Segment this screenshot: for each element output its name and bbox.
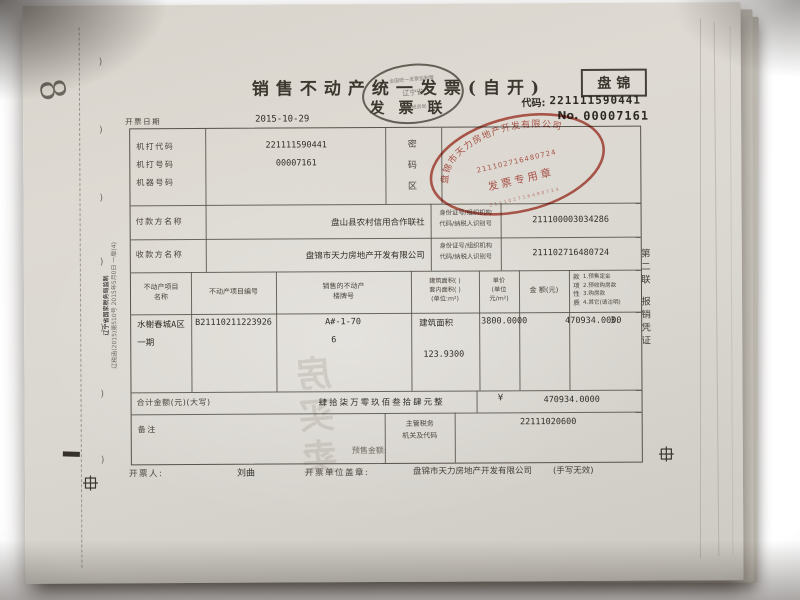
copy-vertical-label: 第二联 报销凭证 bbox=[640, 248, 653, 348]
tax-authority-label-2: 机关及代码 bbox=[387, 431, 453, 441]
currency-symbol: ¥ bbox=[498, 393, 504, 403]
copy-label-line-1: 第二联 bbox=[640, 248, 652, 287]
total-amount: 470934.0000 bbox=[544, 395, 600, 405]
item-building-line2: 6 bbox=[331, 335, 336, 345]
table-grid-line bbox=[385, 128, 386, 204]
nature-option-2: 2.预收购房款 bbox=[583, 281, 621, 290]
invoice-paper-sheet: ) ) ) ) ) ) ) 8 辽宁省国家税务局监制 辽税函(2015)第510… bbox=[22, 2, 743, 584]
table-grid-line bbox=[131, 237, 641, 241]
handwritten-number: 8 bbox=[30, 75, 74, 105]
table-grid-line bbox=[131, 270, 641, 274]
machine-code-label: 机打代码 bbox=[136, 141, 174, 152]
nature-option-4: 4.其它(请注明) bbox=[583, 299, 621, 308]
col-payment-nature: 款项性质 1.预售定金 2.预收购房款 3.购房款 4.其它(请注明) bbox=[572, 273, 621, 308]
item-area-type: 建筑面积 bbox=[419, 317, 453, 329]
issuer-name: 刘曲 bbox=[237, 466, 255, 479]
paper-crease bbox=[700, 18, 701, 558]
tax-authority-code: 22111020600 bbox=[457, 417, 640, 428]
table-grid-line bbox=[205, 129, 207, 272]
registration-cross-mark bbox=[83, 475, 98, 490]
machine-id-label: 机器号码 bbox=[136, 177, 174, 188]
fine-print-line-2: 辽税函(2015)第510号 2015年5月0日 一版(4) bbox=[110, 180, 119, 430]
col-area-3: (单位:m²) bbox=[411, 293, 479, 302]
machine-number-label: 机打号码 bbox=[136, 159, 174, 170]
issue-date-label: 开票日期 bbox=[125, 116, 161, 127]
nature-option-3: 3.购房款 bbox=[583, 290, 621, 299]
col-price-2: (单位 bbox=[479, 284, 519, 293]
col-area-1: 建筑面积( ) bbox=[411, 275, 479, 284]
payer-name: 盘山县农村信用合作联社 bbox=[211, 216, 425, 229]
stub-perforation-line bbox=[79, 28, 83, 568]
total-label: 合计金额(元)(大写) bbox=[137, 397, 211, 408]
machine-id-value bbox=[210, 176, 382, 177]
item-building-line1: A#-1-70 bbox=[325, 317, 361, 327]
nature-option-1: 1.预售定金 bbox=[583, 273, 621, 282]
remark-label: 备注 bbox=[138, 424, 157, 435]
handwriting-invalid-note: (手写无效) bbox=[553, 464, 594, 476]
col-building-2: 楼牌号 bbox=[276, 291, 411, 302]
payer-label: 付款方名称 bbox=[136, 216, 184, 227]
col-price-3: 元/m²) bbox=[479, 293, 519, 302]
registration-cross-mark bbox=[659, 446, 674, 461]
perforation-mark: ) bbox=[99, 125, 103, 135]
seal-unit-label: 开票单位盖章: bbox=[305, 466, 369, 478]
presale-amount-note: 预售金额: bbox=[352, 445, 387, 456]
table-grid-line bbox=[131, 312, 641, 316]
col-area-2: 套内面积( ) bbox=[411, 284, 479, 293]
item-project-code: B21110211223926 bbox=[195, 318, 272, 328]
item-project-name-line2: 一期 bbox=[137, 336, 154, 348]
table-grid-line bbox=[132, 390, 642, 394]
perforation-mark: ) bbox=[101, 455, 105, 465]
monitor-stamp-bottom-text: 国家税务局 bbox=[401, 103, 427, 112]
item-payment-nature: 3. bbox=[610, 316, 620, 326]
copy-label-line-2: 报销凭证 bbox=[640, 296, 652, 348]
payee-id-value: 211102716480724 bbox=[503, 248, 639, 259]
paper-crease bbox=[730, 26, 734, 554]
perforation-mark: ) bbox=[99, 57, 103, 67]
region-name: 盘锦 bbox=[592, 73, 635, 93]
registration-dash-mark bbox=[63, 451, 80, 457]
col-project-name-2: 名称 bbox=[131, 292, 191, 302]
monitor-stamp-center-text: 辽宁省 bbox=[402, 87, 424, 98]
col-project-name-1: 不动产项目 bbox=[131, 282, 191, 292]
payee-label: 收款方名称 bbox=[136, 249, 184, 260]
fine-print: 辽宁省国家税务局监制 辽税函(2015)第510号 2015年5月0日 一版(4… bbox=[102, 180, 119, 430]
item-project-name-line1: 水榭春城A区 bbox=[137, 318, 185, 330]
table-grid-line bbox=[132, 412, 642, 416]
col-amount: 金 额(元) bbox=[519, 285, 569, 295]
seal-unit-name: 盘锦市天力房地产开发有限公司 bbox=[413, 464, 532, 477]
tax-authority-label-1: 主管税务 bbox=[387, 419, 453, 429]
monitor-stamp-top-text: 全国统一发票监制章 bbox=[389, 74, 434, 85]
item-area-value: 123.9300 bbox=[423, 350, 464, 360]
machine-code-value: 221111590441 bbox=[210, 140, 382, 151]
total-in-words: 肆拾柒万零玖佰叁拾肆元整 bbox=[282, 395, 482, 408]
item-unit-price: 3800.0000 bbox=[481, 316, 527, 326]
tax-bureau-oval-stamp: 全国统一发票监制章 辽宁省 国家税务局 bbox=[356, 57, 469, 131]
payee-name: 盘锦市天力房地产开发有限公司 bbox=[211, 249, 425, 262]
desk-photo-background: ) ) ) ) ) ) ) 8 辽宁省国家税务局监制 辽税函(2015)第510… bbox=[0, 0, 800, 600]
table-grid-line bbox=[569, 270, 571, 390]
col-price-1: 单价 bbox=[479, 275, 519, 284]
machine-number-value: 00007161 bbox=[210, 158, 382, 169]
payment-nature-vertical-label: 款项性质 bbox=[572, 273, 581, 308]
issue-date-value: 2015-10-29 bbox=[255, 114, 309, 124]
col-project-code: 不动产项目编号 bbox=[191, 287, 276, 297]
payee-id-label-2: 代码/纳税人识别号 bbox=[432, 251, 500, 260]
col-building-1: 销售的不动产 bbox=[276, 281, 411, 292]
issuer-label: 开票人: bbox=[129, 467, 163, 479]
paper-crease bbox=[714, 22, 720, 556]
payee-id-label-1: 身份证号/组织机构 bbox=[432, 240, 500, 249]
payment-nature-options: 1.预售定金 2.预收购房款 3.购房款 4.其它(请注明) bbox=[583, 273, 621, 308]
